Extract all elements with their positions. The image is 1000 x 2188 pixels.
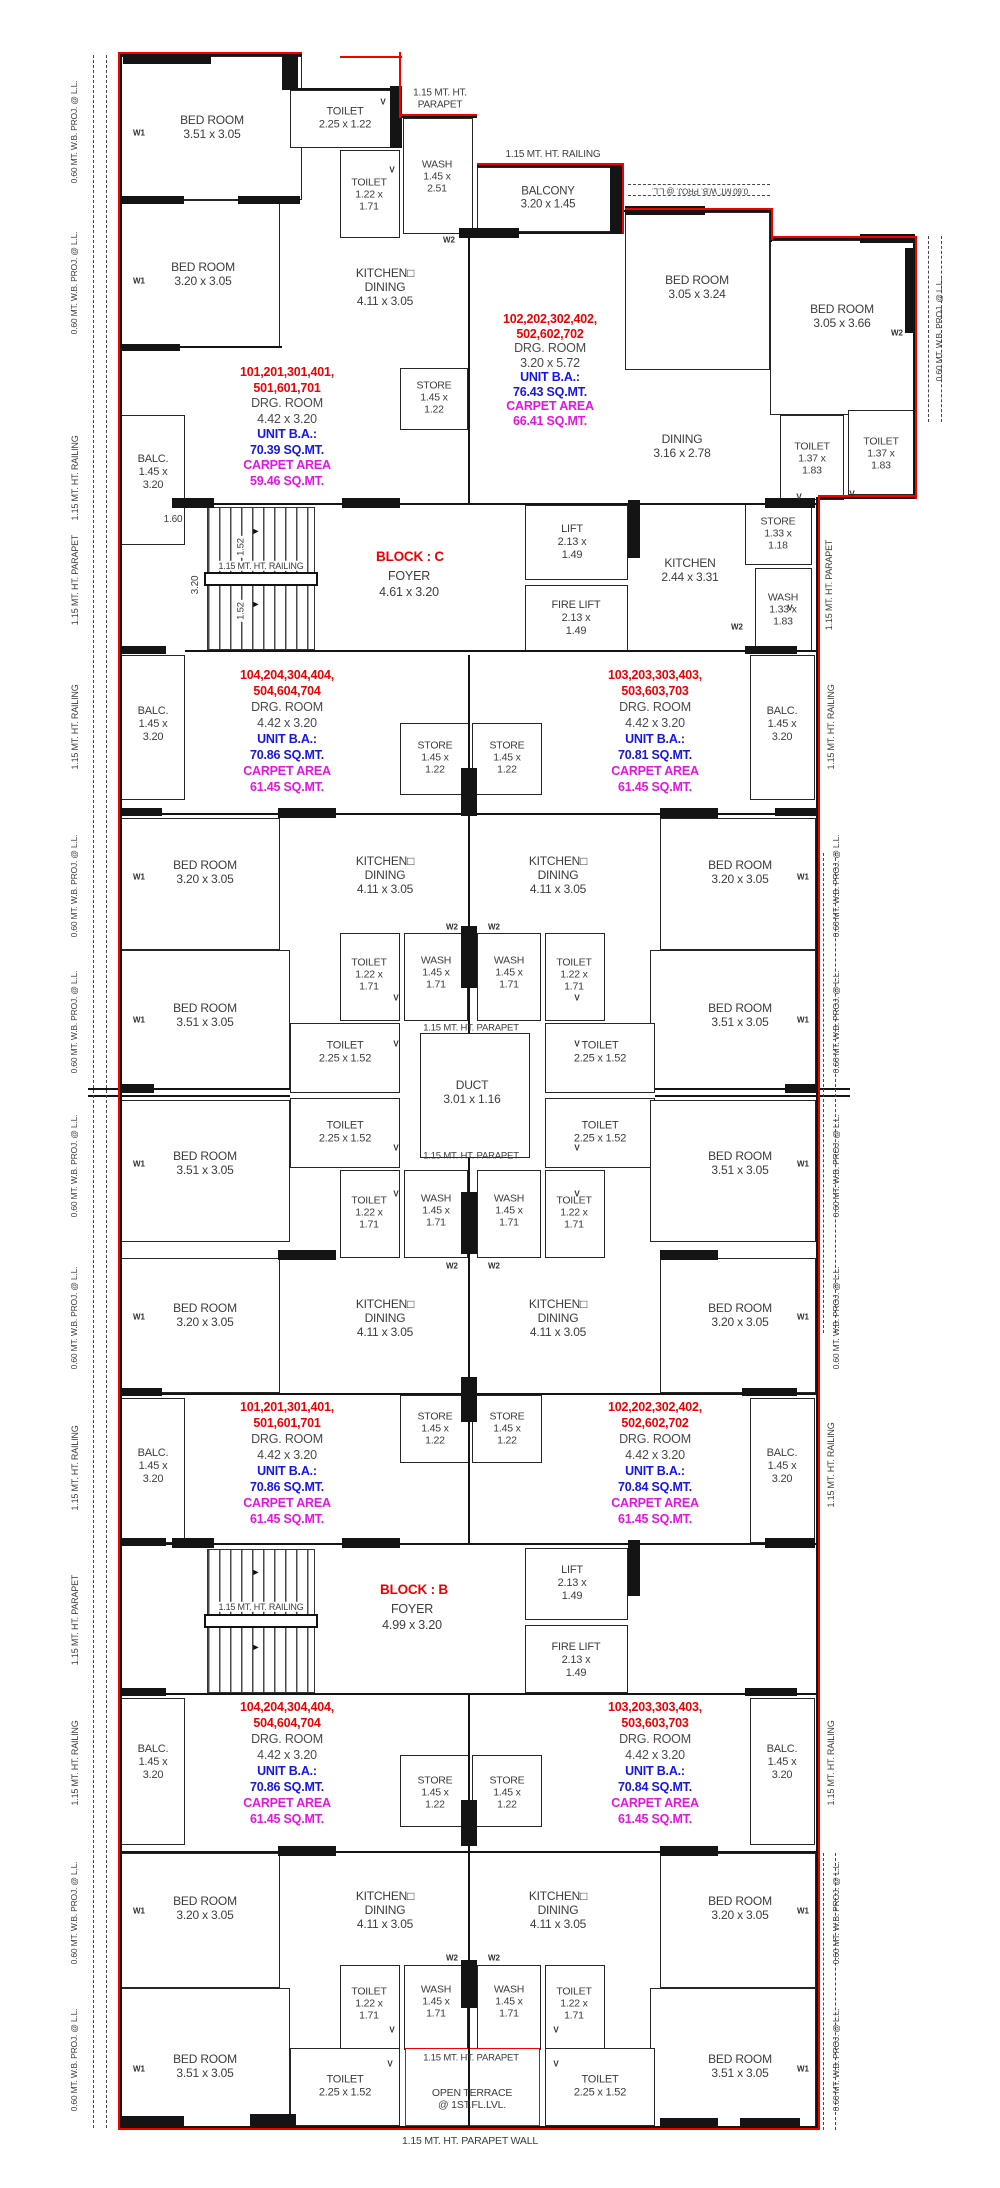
room-label-toilet-mid-a: TOILET 1.22 x 1.71	[351, 957, 386, 994]
projection-dashed-rail	[93, 55, 107, 2128]
wall-segment	[172, 498, 214, 508]
room-label-wash-bot-b: WASH 1.45 x 1.71	[494, 1984, 524, 2021]
wall-segment	[765, 498, 815, 508]
unit-b-101-line: DRG. ROOM	[251, 1432, 323, 1446]
annotation-label: 0.60 MT. W.B. PROJ. @ L.L.	[832, 1862, 842, 1965]
unit-b-102-line: 61.45 SQ.MT.	[618, 1512, 692, 1526]
wall-segment	[655, 1088, 850, 1090]
room-label-balcony-c-top: BALCONY 3.20 x 1.45	[521, 186, 576, 213]
wall-segment	[628, 500, 640, 558]
window-marker: W2	[891, 329, 903, 338]
window-marker: W1	[797, 2065, 809, 2074]
room-label-kitchen-dining-mid-right: KITCHEN□ DINING 4.11 x 3.05	[529, 855, 587, 897]
room-label-bedroom-mid-left-1: BED ROOM 3.20 x 3.05	[173, 859, 237, 887]
wall-segment	[122, 1538, 166, 1546]
unit-b-103-line: 103,203,303,403,	[608, 1700, 702, 1714]
window-marker: W2	[488, 923, 500, 932]
unit-b-104-line: 104,204,304,404,	[240, 1700, 334, 1714]
room-label-kitchen-c-right: KITCHEN 2.44 x 3.31	[661, 557, 718, 585]
wall-segment	[122, 344, 180, 351]
room-label-bedroom-mid-right-1: BED ROOM 3.20 x 3.05	[708, 859, 772, 887]
annotation-label: 0.60 MT. W.B. PROJ. @ L.L.	[70, 835, 80, 938]
wall-segment	[468, 232, 470, 505]
stair-direction-arrow: ►	[252, 1642, 261, 1652]
unit-b-103-line: 4.42 x 3.20	[625, 1748, 685, 1762]
wall-segment	[250, 2114, 296, 2126]
annotation-label: 1.52	[235, 536, 246, 558]
annotation-label: 1.15 MT. HT. RAILING	[70, 1720, 80, 1805]
vent-marker: V	[574, 994, 579, 1003]
room-label-bedroom-mid-left-2: BED ROOM 3.51 x 3.05	[173, 1002, 237, 1030]
room-label-toilet-bot-left: TOILET 2.25 x 1.52	[319, 2073, 371, 2099]
unit-c-101-line: 101,201,301,401,	[240, 365, 334, 379]
window-marker: W1	[133, 277, 145, 286]
unit-c-103-line: UNIT B.A.:	[625, 732, 685, 746]
unit-b-101-line: 61.45 SQ.MT.	[250, 1512, 324, 1526]
room-label-balcony-c-lower-right: BALC. 1.45 x 3.20	[767, 705, 798, 743]
annotation-label: 0.60 MT. W.B. PROJ. @ L.L.	[935, 279, 945, 382]
window-marker: W1	[797, 1160, 809, 1169]
unit-b-104-line: DRG. ROOM	[251, 1732, 323, 1746]
wall-segment	[459, 228, 519, 238]
annotation-label: 3.20	[190, 576, 202, 595]
red-outline-segment	[622, 163, 624, 234]
room-label-bedroom-b-right-2: BED ROOM 3.20 x 3.05	[708, 1895, 772, 1923]
unit-c-104-line: 61.45 SQ.MT.	[250, 780, 324, 794]
window-marker: W2	[446, 1954, 458, 1963]
room-label-wash-mid-c: WASH 1.45 x 1.71	[421, 1193, 451, 1230]
room-label-bedroom-b-left-2: BED ROOM 3.20 x 3.05	[173, 1895, 237, 1923]
unit-b-102-line: 102,202,302,402,	[608, 1400, 702, 1414]
annotation-label: 0.60 MT. W.B. PROJ. @ L.L.	[832, 835, 842, 938]
annotation-label: 1.15 MT. HT. RAILING	[506, 149, 601, 161]
wall-segment	[172, 1538, 214, 1548]
unit-c-101-line: 70.39 SQ.MT.	[250, 443, 324, 457]
wall-segment	[775, 808, 817, 816]
window-marker: W1	[133, 1016, 145, 1025]
room-label-bedroom-bot-left: BED ROOM 3.51 x 3.05	[173, 2053, 237, 2081]
annotation-label: 4.61 x 3.20	[379, 585, 439, 600]
staircase-block-b-landing	[204, 1614, 318, 1628]
vent-marker: V	[393, 1190, 398, 1199]
wall-segment	[401, 116, 477, 118]
annotation-label: 0.60 MT. W.B. PROJ. @ L.L.	[70, 971, 80, 1074]
unit-c-103-line: 503,603,703	[621, 684, 688, 698]
annotation-label: FOYER	[388, 569, 430, 584]
window-marker: W1	[797, 873, 809, 882]
annotation-label: 1.15 MT. HT. PARAPET	[413, 87, 467, 110]
unit-b-103-line: UNIT B.A.:	[625, 1764, 685, 1778]
unit-c-102-line: 3.20 x 5.72	[520, 356, 580, 370]
unit-b-102-line: 502,602,702	[621, 1416, 688, 1430]
unit-c-101-line: UNIT B.A.:	[257, 427, 317, 441]
wall-segment	[122, 1084, 154, 1093]
wall-segment	[461, 1377, 477, 1422]
room-label-wash-c-right: WASH 1.33 x 1.83	[768, 592, 798, 629]
window-marker: W1	[797, 1016, 809, 1025]
room-label-store-c-upper: STORE 1.45 x 1.22	[417, 380, 452, 417]
room-label-kitchen-dining-c-left: KITCHEN□ DINING 4.11 x 3.05	[356, 267, 414, 309]
vent-marker: V	[393, 994, 398, 1003]
unit-c-101-line: 59.46 SQ.MT.	[250, 474, 324, 488]
red-outline-segment	[915, 236, 917, 499]
wall-segment	[742, 1388, 797, 1396]
window-marker: W2	[731, 623, 743, 632]
window-marker: W1	[133, 1313, 145, 1322]
wall-segment	[610, 163, 622, 233]
room-label-bedroom-c2-left: BED ROOM 3.20 x 3.05	[171, 261, 235, 289]
unit-c-101-line: DRG. ROOM	[251, 396, 323, 410]
vent-marker: V	[574, 1190, 579, 1199]
room-label-bedroom-bot-right: BED ROOM 3.51 x 3.05	[708, 2053, 772, 2081]
wall-segment	[342, 498, 400, 508]
room-label-store-b-lower-2: STORE 1.45 x 1.22	[490, 1775, 525, 1812]
room-label-dining-c-right: DINING 3.16 x 2.78	[653, 433, 710, 461]
room-label-toilet-c-small: TOILET 1.22 x 1.71	[351, 177, 386, 214]
wall-segment	[122, 1388, 162, 1396]
wall-segment	[342, 1538, 400, 1548]
room-label-toilet-c-right-1: TOILET 1.37 x 1.83	[794, 441, 829, 478]
unit-c-103-line: 103,203,303,403,	[608, 668, 702, 682]
vent-marker: V	[796, 493, 801, 502]
room-label-toilet-225-ur: TOILET 2.25 x 1.52	[574, 1039, 626, 1065]
room-label-wash-mid-a: WASH 1.45 x 1.71	[421, 955, 451, 992]
wall-segment	[238, 196, 300, 204]
unit-b-101-line: 501,601,701	[253, 1416, 320, 1430]
wall-segment	[660, 1250, 718, 1260]
room-label-bedroom-mid-left-3: BED ROOM 3.51 x 3.05	[173, 1150, 237, 1178]
annotation-label: 1.15 MT. HT. RAILING	[70, 1425, 80, 1510]
annotation-label: 1.15 MT. HT. PARAPET	[423, 1150, 519, 1161]
annotation-label: 1.15 MT. HT. RAILING	[216, 1602, 305, 1612]
room-label-toilet-mid-b: TOILET 1.22 x 1.71	[556, 957, 591, 994]
wall-segment	[461, 1960, 477, 2008]
room-label-wash-bot-a: WASH 1.45 x 1.71	[421, 1984, 451, 2021]
unit-b-104-line: UNIT B.A.:	[257, 1764, 317, 1778]
room-label-kitchen-dining-b2-left: KITCHEN□ DINING 4.11 x 3.05	[356, 1890, 414, 1932]
room-label-bedroom-c-right-2: BED ROOM 3.05 x 3.66	[810, 303, 874, 331]
room-label-toilet-bot-a: TOILET 1.22 x 1.71	[351, 1986, 386, 2023]
room-label-balcony-b-upper-right: BALC. 1.45 x 3.20	[767, 1447, 798, 1485]
unit-c-101-line: CARPET AREA	[243, 458, 331, 472]
unit-c-104-line: 70.86 SQ.MT.	[250, 748, 324, 762]
unit-b-104-line: 61.45 SQ.MT.	[250, 1812, 324, 1826]
unit-c-103-line: 4.42 x 3.20	[625, 716, 685, 730]
unit-c-101-line: 501,601,701	[253, 381, 320, 395]
unit-b-103-line: 61.45 SQ.MT.	[618, 1812, 692, 1826]
room-label-balcony-b-lower-right: BALC. 1.45 x 3.20	[767, 1743, 798, 1781]
wall-segment	[740, 2118, 800, 2128]
vent-marker: V	[553, 2026, 558, 2035]
room-label-toilet-mid-d: TOILET 1.22 x 1.71	[556, 1195, 591, 1232]
window-marker: W1	[133, 2065, 145, 2074]
unit-b-101-line: UNIT B.A.:	[257, 1464, 317, 1478]
annotation-label: 1.15 MT. HT. PARAPET	[824, 540, 834, 630]
annotation-label: 1.15 MT. HT. PARAPET	[423, 2052, 519, 2063]
room-label-toilet-c-top: TOILET 2.25 x 1.22	[319, 105, 371, 131]
unit-c-104-line: 4.42 x 3.20	[257, 716, 317, 730]
wall-segment	[278, 808, 336, 818]
unit-c-103-line: 61.45 SQ.MT.	[618, 780, 692, 794]
room-label-kitchen-dining-b2-right: KITCHEN□ DINING 4.11 x 3.05	[529, 1890, 587, 1932]
room-label-fire-lift-c: FIRE LIFT 2.13 x 1.49	[552, 599, 601, 637]
wall-segment	[122, 2116, 184, 2128]
stair-direction-arrow: ►	[252, 599, 261, 609]
unit-c-102-line: CARPET AREA	[506, 399, 594, 413]
wall-segment	[745, 1688, 797, 1696]
unit-c-102-line: 502,602,702	[516, 327, 583, 341]
wall-segment	[461, 768, 477, 816]
unit-b-103-line: CARPET AREA	[611, 1796, 699, 1810]
wall-segment	[785, 1084, 817, 1093]
room-label-store-c-right: STORE 1.33 x 1.18	[761, 516, 796, 553]
unit-b-103-line: 503,603,703	[621, 1716, 688, 1730]
unit-c-102-line: DRG. ROOM	[514, 341, 586, 355]
annotation-label: 1.15 MT. HT. RAILING	[826, 1720, 836, 1805]
red-outline-segment	[399, 52, 401, 118]
annotation-label: 0.60 MT. W.B. PROJ. @ L.L.	[832, 1267, 842, 1370]
wall-segment	[765, 1538, 815, 1548]
annotation-label: FOYER	[391, 1602, 433, 1617]
vent-marker: V	[849, 490, 854, 499]
room-label-bedroom-b-left-1: BED ROOM 3.20 x 3.05	[173, 1302, 237, 1330]
wall-segment	[278, 1250, 336, 1260]
stair-direction-arrow: ►	[252, 1567, 261, 1577]
vent-marker: V	[389, 166, 394, 175]
unit-c-104-line: 504,604,704	[253, 684, 320, 698]
unit-c-102-line: 66.41 SQ.MT.	[513, 414, 587, 428]
room-label-store-b-upper-1: STORE 1.45 x 1.22	[418, 1411, 453, 1448]
room-label-balcony-b-upper-left: BALC. 1.45 x 3.20	[138, 1447, 169, 1485]
red-outline-segment	[340, 56, 402, 58]
annotation-label: 1.15 MT. HT. PARAPET WALL	[402, 2135, 538, 2147]
unit-b-104-line: CARPET AREA	[243, 1796, 331, 1810]
room-label-kitchen-dining-b-left: KITCHEN□ DINING 4.11 x 3.05	[356, 1298, 414, 1340]
room-label-bedroom-mid-right-2: BED ROOM 3.51 x 3.05	[708, 1002, 772, 1030]
annotation-label: BLOCK : C	[376, 549, 444, 565]
red-outline-segment	[118, 52, 120, 2128]
window-marker: W2	[443, 236, 455, 245]
wall-segment	[660, 2118, 718, 2128]
wall-segment	[185, 650, 818, 652]
room-label-toilet-225-ul: TOILET 2.25 x 1.52	[319, 1039, 371, 1065]
unit-b-102-line: 4.42 x 3.20	[625, 1448, 685, 1462]
vent-marker: V	[393, 1144, 398, 1153]
vent-marker: V	[393, 1040, 398, 1049]
window-marker: W2	[488, 1262, 500, 1271]
unit-b-104-line: 4.42 x 3.20	[257, 1748, 317, 1762]
unit-c-102-line: UNIT B.A.:	[520, 370, 580, 384]
room-label-kitchen-dining-mid-left: KITCHEN□ DINING 4.11 x 3.05	[356, 855, 414, 897]
annotation-label: BLOCK : B	[380, 1582, 448, 1598]
annotation-label: 4.99 x 3.20	[382, 1618, 442, 1633]
unit-b-101-line: 4.42 x 3.20	[257, 1448, 317, 1462]
annotation-label: 1.15 MT. HT. RAILING	[826, 1422, 836, 1507]
red-outline-segment	[118, 52, 302, 54]
room-label-store-b-lower-1: STORE 1.45 x 1.22	[418, 1775, 453, 1812]
annotation-label: 1.15 MT. HT. RAILING	[70, 435, 80, 520]
wall-segment	[278, 1846, 336, 1856]
room-label-lift-c: LIFT 2.13 x 1.49	[558, 523, 587, 561]
wall-segment	[655, 1095, 850, 1097]
unit-c-101-line: 4.42 x 3.20	[257, 412, 317, 426]
annotation-label: 1.15 MT. HT. PARAPET	[423, 1022, 519, 1033]
unit-c-103-line: CARPET AREA	[611, 764, 699, 778]
unit-b-101-line: CARPET AREA	[243, 1496, 331, 1510]
annotation-label: 1.15 MT. HT. PARAPET	[70, 535, 80, 625]
floor-plan: ►►►►BED ROOM 3.51 x 3.05BED ROOM 3.20 x …	[0, 0, 1000, 2188]
unit-b-104-line: 70.86 SQ.MT.	[250, 1780, 324, 1794]
room-label-bedroom-mid-right-3: BED ROOM 3.51 x 3.05	[708, 1150, 772, 1178]
vent-marker: V	[574, 1040, 579, 1049]
room-label-kitchen-dining-b-right: KITCHEN□ DINING 4.11 x 3.05	[529, 1298, 587, 1340]
wall-segment	[122, 808, 162, 816]
unit-c-102-line: 102,202,302,402,	[503, 312, 597, 326]
wall-segment	[288, 88, 402, 90]
room-label-bedroom-c1-left: BED ROOM 3.51 x 3.05	[180, 114, 244, 142]
room-label-balcony-c-upper-left: BALC. 1.45 x 3.20	[138, 453, 169, 491]
vent-marker: V	[387, 2060, 392, 2069]
vent-marker: V	[389, 2026, 394, 2035]
annotation-label: 1.15 MT. HT. RAILING	[216, 561, 305, 571]
wall-segment	[122, 1688, 166, 1696]
wall-segment	[477, 165, 622, 167]
vent-marker: V	[787, 604, 792, 613]
room-label-store-c-lower-1: STORE 1.45 x 1.22	[418, 740, 453, 777]
unit-b-104-line: 504,604,704	[253, 1716, 320, 1730]
window-marker: W1	[133, 1160, 145, 1169]
annotation-label: 0.60 MT. W.B. PROJ. @ L.L.	[70, 81, 80, 184]
annotation-label: 0.60 MT. W.B. PROJ. @ L.L.	[70, 2009, 80, 2112]
annotation-label: 1.15 MT. HT. PARAPET	[70, 1575, 80, 1665]
annotation-label: 1.15 MT. HT. RAILING	[70, 684, 80, 769]
unit-c-104-line: DRG. ROOM	[251, 700, 323, 714]
wall-segment	[185, 503, 818, 505]
wall-segment	[660, 1846, 718, 1856]
wall-segment	[628, 1540, 640, 1596]
annotation-label: 0.60 MT. W.B. PROJ. @ L.L.	[70, 232, 80, 335]
wall-segment	[818, 497, 915, 499]
red-outline-segment	[818, 495, 917, 497]
room-label-balcony-c-lower-left: BALC. 1.45 x 3.20	[138, 705, 169, 743]
unit-c-104-line: UNIT B.A.:	[257, 732, 317, 746]
window-marker: W1	[133, 129, 145, 138]
stair-direction-arrow: ►	[252, 526, 261, 536]
wall-segment	[660, 808, 718, 818]
window-marker: W1	[133, 1907, 145, 1916]
window-marker: W2	[446, 923, 458, 932]
window-marker: W1	[133, 873, 145, 882]
room-label-wash-c-top: WASH 1.45 x 2.51	[422, 159, 452, 196]
unit-b-103-line: DRG. ROOM	[619, 1732, 691, 1746]
room-label-bedroom-b-right-1: BED ROOM 3.20 x 3.05	[708, 1302, 772, 1330]
unit-c-104-line: CARPET AREA	[243, 764, 331, 778]
annotation-label: 0.60 MT. W.B. PROJ. @ L.L.	[832, 1115, 842, 1218]
room-label-open-terrace: OPEN TERRACE @ 1ST.FL.LVL.	[432, 2087, 512, 2111]
room-label-lift-b: LIFT 2.13 x 1.49	[558, 1564, 587, 1602]
red-outline-segment	[625, 208, 773, 210]
unit-c-103-line: DRG. ROOM	[619, 700, 691, 714]
annotation-label: 0.60 MT. W.B. PROJ. @ L.L.	[832, 971, 842, 1074]
wall-segment	[122, 646, 166, 654]
staircase-block-c-landing	[204, 572, 318, 586]
vent-marker: V	[380, 98, 385, 107]
room-label-fire-lift-b: FIRE LIFT 2.13 x 1.49	[552, 1641, 601, 1679]
red-outline-segment	[399, 114, 477, 116]
red-outline-segment	[118, 2128, 820, 2130]
room-label-wash-mid-b: WASH 1.45 x 1.71	[494, 955, 524, 992]
red-outline-segment	[771, 236, 917, 238]
wall-segment	[461, 1800, 477, 1846]
window-marker: W2	[446, 1262, 458, 1271]
room-label-bedroom-c-right-1: BED ROOM 3.05 x 3.24	[665, 274, 729, 302]
room-label-toilet-bot-b: TOILET 1.22 x 1.71	[556, 1986, 591, 2023]
wall-segment	[461, 926, 477, 988]
wall-segment	[461, 1192, 477, 1254]
window-marker: W2	[488, 1954, 500, 1963]
room-label-toilet-c-right-2: TOILET 1.37 x 1.83	[863, 436, 898, 473]
vent-marker: V	[574, 1144, 579, 1153]
annotation-label: 1.52	[235, 600, 246, 622]
wall-segment	[905, 248, 915, 333]
annotation-label: 0.60 MT. W.B. PROJ. @ L.L.	[652, 186, 748, 195]
room-label-store-b-upper-2: STORE 1.45 x 1.22	[490, 1411, 525, 1448]
wall-segment	[122, 196, 184, 204]
room-label-store-c-lower-2: STORE 1.45 x 1.22	[490, 740, 525, 777]
unit-b-102-line: CARPET AREA	[611, 1496, 699, 1510]
unit-b-101-line: 70.86 SQ.MT.	[250, 1480, 324, 1494]
annotation-label: 0.60 MT. W.B. PROJ. @ L.L.	[70, 1115, 80, 1218]
unit-b-101-line: 101,201,301,401,	[240, 1400, 334, 1414]
annotation-label: 1.15 MT. HT. RAILING	[826, 684, 836, 769]
unit-b-102-line: UNIT B.A.:	[625, 1464, 685, 1478]
room-label-balcony-b-lower-left: BALC. 1.45 x 3.20	[138, 1743, 169, 1781]
annotation-label: 0.60 MT. W.B. PROJ. @ L.L.	[70, 1267, 80, 1370]
window-marker: W1	[797, 1907, 809, 1916]
room-label-toilet-mid-c: TOILET 1.22 x 1.71	[351, 1195, 386, 1232]
annotation-label: 0.60 MT. W.B. PROJ. @ L.L.	[70, 1862, 80, 1965]
unit-b-102-line: 70.84 SQ.MT.	[618, 1480, 692, 1494]
unit-c-103-line: 70.81 SQ.MT.	[618, 748, 692, 762]
room-label-duct: DUCT 3.01 x 1.16	[443, 1079, 500, 1107]
room-label-toilet-225-ll: TOILET 2.25 x 1.52	[319, 1119, 371, 1145]
room-label-wash-mid-d: WASH 1.45 x 1.71	[494, 1193, 524, 1230]
red-outline-segment	[477, 163, 622, 165]
room-label-toilet-bot-right: TOILET 2.25 x 1.52	[574, 2073, 626, 2099]
annotation-label: 1.60	[164, 514, 183, 526]
unit-b-102-line: DRG. ROOM	[619, 1432, 691, 1446]
wall-segment	[282, 54, 298, 90]
annotation-label: 0.60 MT. W.B. PROJ. @ L.L.	[832, 2009, 842, 2112]
unit-c-102-line: 76.43 SQ.MT.	[513, 385, 587, 399]
window-marker: W1	[797, 1313, 809, 1322]
vent-marker: V	[553, 2060, 558, 2069]
unit-b-103-line: 70.84 SQ.MT.	[618, 1780, 692, 1794]
room-label-toilet-225-lr: TOILET 2.25 x 1.52	[574, 1119, 626, 1145]
unit-c-104-line: 104,204,304,404,	[240, 668, 334, 682]
wall-segment	[745, 646, 797, 654]
red-outline-segment	[818, 495, 820, 2128]
